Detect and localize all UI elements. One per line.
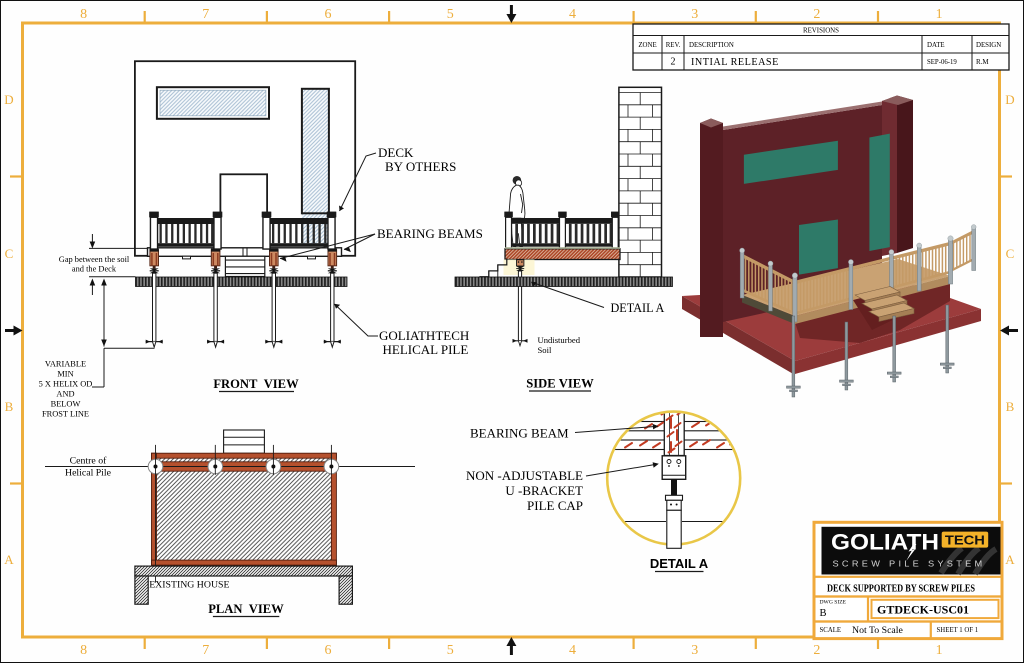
svg-text:DWG SIZE: DWG SIZE [820,600,847,606]
svg-text:SCREW PILE SYSTEM: SCREW PILE SYSTEM [833,559,986,569]
svg-text:B: B [820,608,827,619]
svg-text:Gap between the soil: Gap between the soil [59,255,130,264]
svg-text:EXISTING HOUSE: EXISTING HOUSE [149,580,229,591]
svg-text:SIDE VIEW: SIDE VIEW [526,377,594,391]
svg-text:D: D [1005,92,1014,107]
svg-text:3: 3 [691,7,698,22]
svg-text:NON -ADJUSTABLE: NON -ADJUSTABLE [466,468,583,483]
svg-text:A: A [4,552,14,567]
svg-text:PILE CAP: PILE CAP [527,498,583,513]
svg-text:DESCRIPTION: DESCRIPTION [689,42,734,49]
svg-text:PLAN VIEW: PLAN VIEW [208,602,284,616]
svg-text:A: A [1005,552,1015,567]
svg-text:SEP-06-19: SEP-06-19 [927,59,957,66]
svg-text:SHEET 1 OF 1: SHEET 1 OF 1 [937,627,979,634]
svg-text:6: 6 [325,643,332,658]
svg-text:REVISIONS: REVISIONS [803,28,839,35]
svg-text:BELOW: BELOW [51,400,81,409]
svg-text:6: 6 [325,7,332,22]
svg-text:Centre of: Centre of [70,456,107,467]
svg-text:4: 4 [569,7,576,22]
svg-text:5: 5 [447,7,454,22]
svg-text:DATE: DATE [927,42,945,49]
svg-text:HELICAL PILE: HELICAL PILE [383,342,469,357]
svg-text:FROST LINE: FROST LINE [42,410,89,419]
svg-text:2: 2 [813,643,820,658]
svg-text:FRONT VIEW: FRONT VIEW [213,377,299,391]
svg-text:INTIAL RELEASE: INTIAL RELEASE [691,57,779,68]
svg-text:C: C [5,246,14,261]
svg-text:DESIGN: DESIGN [976,42,1001,49]
svg-text:MIN: MIN [57,370,73,379]
svg-text:Not To Scale: Not To Scale [852,625,903,636]
svg-text:R.M: R.M [976,58,989,66]
svg-text:GTDECK-USC01: GTDECK-USC01 [877,603,969,617]
svg-text:Helical Pile: Helical Pile [65,468,112,479]
svg-text:Soil: Soil [538,345,552,355]
svg-text:DETAIL A: DETAIL A [650,556,709,571]
svg-text:B: B [5,399,14,414]
svg-text:Undisturbed: Undisturbed [538,335,581,345]
svg-text:DETAIL A: DETAIL A [611,301,665,315]
svg-text:GOLIATHTECH: GOLIATHTECH [379,328,469,343]
svg-text:GOLIATH: GOLIATH [831,530,939,555]
svg-text:2: 2 [671,57,676,68]
svg-text:AND: AND [56,390,74,399]
svg-text:3: 3 [691,643,698,658]
svg-text:4: 4 [569,643,576,658]
svg-text:B: B [1006,399,1015,414]
svg-text:7: 7 [202,7,209,22]
svg-text:BEARING BEAM: BEARING BEAM [470,426,569,441]
svg-text:C: C [1006,246,1015,261]
svg-text:5: 5 [447,643,454,658]
svg-text:1: 1 [936,7,943,22]
svg-text:8: 8 [80,643,87,658]
svg-text:DECK SUPPORTED BY SCREW PILES: DECK SUPPORTED BY SCREW PILES [827,583,975,595]
svg-text:U -BRACKET: U -BRACKET [505,483,583,498]
svg-text:7: 7 [202,643,209,658]
svg-text:SCALE: SCALE [820,627,842,634]
svg-text:VARIABLE: VARIABLE [45,360,86,369]
svg-text:D: D [4,92,13,107]
svg-text:ZONE: ZONE [638,42,656,49]
svg-text:1: 1 [936,643,943,658]
svg-text:TECH: TECH [945,534,985,548]
svg-text:and the Deck: and the Deck [72,265,117,274]
svg-text:5 X HELIX OD: 5 X HELIX OD [39,380,93,389]
svg-text:BEARING BEAMS: BEARING BEAMS [377,226,483,241]
svg-text:DECK: DECK [378,145,414,160]
svg-text:REV.: REV. [666,42,681,49]
svg-text:2: 2 [813,7,820,22]
svg-text:8: 8 [80,7,87,22]
svg-text:BY OTHERS: BY OTHERS [385,159,456,174]
